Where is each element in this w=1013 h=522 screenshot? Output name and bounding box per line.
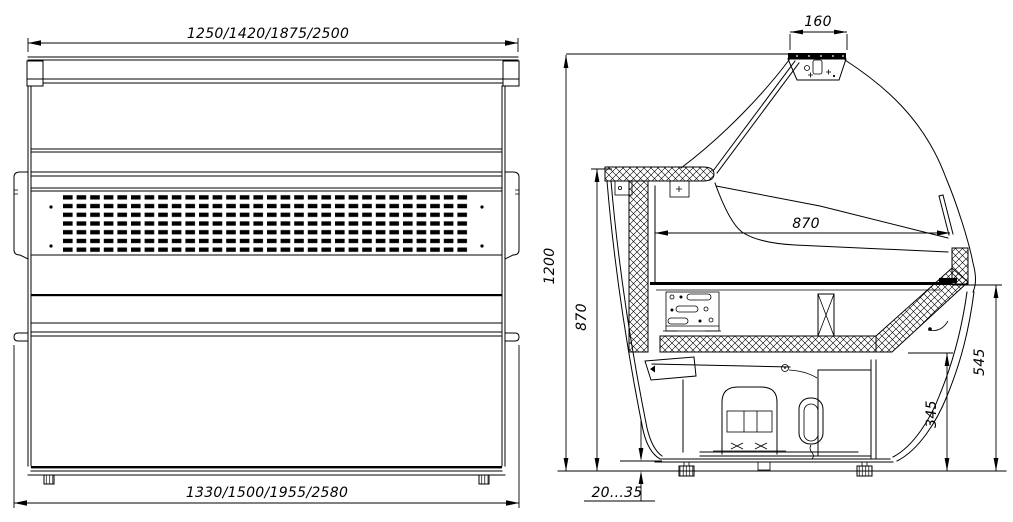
dim-front-height: 545	[952, 285, 1002, 471]
dim-display-depth: 870	[655, 216, 950, 236]
dim-overall-height: 1200	[542, 54, 788, 471]
dim-label-foot-clearance: 20...35	[591, 485, 642, 501]
dim-label-overall-height: 1200	[542, 248, 558, 285]
rear-glass-pane	[713, 61, 799, 173]
machine-compartment	[645, 357, 893, 476]
dim-label-canopy-width: 160	[804, 14, 832, 30]
side-right-foot	[857, 466, 872, 476]
body-sides	[28, 86, 505, 466]
display-deck	[650, 282, 952, 285]
side-left-foot	[679, 466, 694, 476]
dim-label-overall-width-top: 1250/1420/1875/2500	[187, 26, 349, 42]
insulated-back-wall	[629, 181, 648, 352]
lamp-holder	[813, 60, 822, 74]
base-thick-line	[31, 466, 502, 468]
side-tabs	[14, 333, 519, 341]
dim-label-overall-width-bottom: 1330/1500/1955/2580	[186, 485, 348, 501]
center-support	[758, 462, 770, 470]
insulated-bottom	[660, 336, 876, 352]
drawing-canvas: 1250/1420/1875/2500	[0, 0, 1013, 522]
dim-label-base-height: 345	[924, 400, 940, 428]
dim-base-height: 345	[908, 353, 953, 471]
interior-line-lower	[715, 183, 948, 252]
technical-drawing: 1250/1420/1875/2500	[0, 0, 1013, 522]
rear-top-curve	[681, 60, 789, 168]
evaporator-bracket	[663, 292, 721, 331]
interior-line-upper	[716, 186, 948, 238]
dim-label-display-depth: 870	[792, 216, 820, 232]
side-section-view: 1200 870 160	[542, 14, 1006, 501]
worktop-brackets	[615, 181, 689, 197]
compressor	[713, 387, 786, 454]
divider-thick-line	[31, 294, 502, 296]
receiver	[799, 398, 823, 459]
dim-canopy-width: 160	[790, 14, 847, 50]
dim-label-rear-counter-height: 870	[574, 303, 590, 331]
dim-label-front-height: 545	[972, 348, 988, 376]
front-left-foot	[44, 475, 54, 484]
dim-overall-widths-top: 1250/1420/1875/2500	[28, 26, 518, 52]
front-right-foot	[479, 475, 489, 484]
dim-rear-counter-height: 870	[574, 169, 612, 471]
condenser-box	[818, 370, 871, 456]
insulated-worktop	[605, 167, 714, 181]
canopy-bar	[27, 57, 519, 86]
insulated-front-column	[952, 248, 968, 284]
base-frame	[655, 459, 893, 462]
machine-base-plate	[700, 452, 858, 456]
front-view: 1250/1420/1875/2500	[14, 26, 519, 508]
condensate-pipe	[928, 321, 948, 331]
dim-overall-widths-bottom: 1330/1500/1955/2580	[14, 345, 519, 508]
ventilation-grille	[63, 193, 470, 254]
beam-section	[818, 294, 834, 336]
